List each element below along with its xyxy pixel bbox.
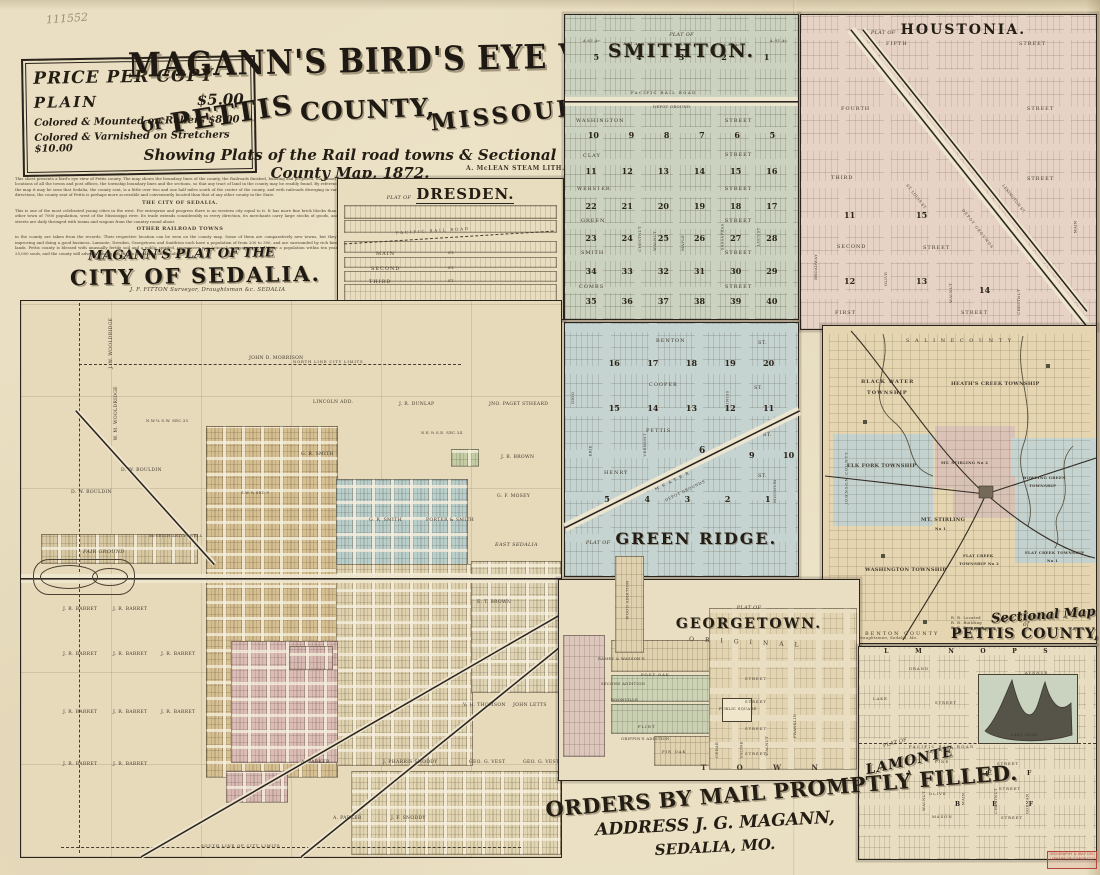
fairground-label: FAIR GROUND <box>83 550 125 555</box>
street-label: ST. <box>758 474 767 479</box>
township-label: FLAT CREEK <box>963 554 994 558</box>
street-label: ERIE <box>589 445 593 456</box>
street-label: SALINE <box>740 741 744 758</box>
street-label: FIRST <box>835 311 856 316</box>
block-number: 6 <box>699 447 705 456</box>
parcel-label: JOHN LETTS <box>513 704 547 709</box>
street-label: CLAY <box>583 154 601 159</box>
smithton-depot-label: DEPOT GROUND <box>653 105 690 109</box>
addition-label: WOOD ADDITION <box>626 580 630 619</box>
street-label: WALNUT <box>949 283 953 303</box>
street-label: AVENUE <box>1025 671 1048 675</box>
parcel-label: J. R. BARRET <box>161 711 195 716</box>
lamonte-block-letter-row: LMNOPS <box>871 649 1061 655</box>
map-main-title: MAGANN'S BIRD'S EYE VIEW <box>128 37 579 86</box>
street-label: WALNUT <box>922 791 926 811</box>
lamonte-title-prefix: PLAT OF <box>883 738 908 749</box>
addition-label: GRIFFIN'S ADDITION <box>621 737 670 741</box>
street-label: CHESTNUT <box>994 788 998 814</box>
street-label: MAPLE <box>681 235 685 251</box>
block-number: 9 <box>749 451 755 459</box>
township-label: FLAT CREEK TOWNSHIP <box>1025 551 1084 555</box>
township-label: HEATH'S CREEK TOWNSHIP <box>951 382 1040 387</box>
smithton-block-row: 222120191817 <box>573 202 790 210</box>
parcel-label: J. R. BARRET <box>113 608 147 613</box>
county-border-label: JOHNSON COUNTY <box>845 451 849 504</box>
street-label: STREET <box>745 752 767 756</box>
street-label: GORMAN <box>1025 794 1029 815</box>
green-ridge-railroad-line <box>563 407 801 532</box>
street-label: STREET <box>1027 107 1054 112</box>
township-label: MT. STIRLING <box>921 518 965 523</box>
acreage-label: A.61 Ac. <box>623 42 641 46</box>
street-label: STREET <box>745 727 767 731</box>
street-label: CEDAR <box>715 742 719 758</box>
street-label: LOCUST <box>756 228 760 247</box>
township-label: BOWLING GREEN <box>1023 476 1066 480</box>
street-label: FLINT <box>638 725 656 729</box>
street-label: FIFTH <box>886 42 908 47</box>
block-number: 12 <box>844 277 855 285</box>
street-label: FOURTH <box>841 107 870 112</box>
county-border-label: S A L I N E C O U N T Y <box>906 338 1013 344</box>
green-ridge-block-row: 54321 <box>587 495 788 503</box>
addition-label: SECOND ADDITION <box>601 682 645 686</box>
street-label: THIRD <box>831 176 853 181</box>
street-label: STREET <box>935 701 957 705</box>
street-label: CHESTNUT <box>638 226 642 252</box>
sedalia-title-line1: MAGANN'S PLAT OF THE <box>88 245 275 263</box>
street-label: STREET <box>1027 177 1054 182</box>
georgetown-addition-block <box>611 704 723 734</box>
plat-georgetown: PLAT OF GEORGETOWN. RAMEY & WASSON'S POS… <box>558 579 860 781</box>
description-para2: This is one of the most celebrated young… <box>15 208 345 224</box>
plat-green-ridge: BENTON ST. 1617181920 COOPER ST. 1514131… <box>564 322 799 577</box>
street-label: STREET <box>725 285 752 290</box>
smithton-block-row: 111213141516 <box>573 167 790 175</box>
addition-label: BOONVILLE <box>611 698 638 702</box>
street-label: HENRY <box>604 471 628 476</box>
sedalia-south-limit-line <box>61 847 521 848</box>
street-label: BROADWAY <box>814 254 818 280</box>
parcel-label: E. T. BROWN <box>477 601 511 606</box>
parcel-label: D. W. BOULDIN <box>71 491 112 496</box>
parcel-label: J. R. BARRET <box>63 711 97 716</box>
parcel-label: J. W. WOOLDRIDGE <box>110 318 115 369</box>
smithton-title-prefix: PLAT OF <box>669 32 694 38</box>
street-label: LAKE <box>873 697 888 701</box>
sectional-map: S A L I N E C O U N T Y JOHNSON COUNTY C… <box>822 325 1097 644</box>
section-code-label: N.E.¼ S.E. SEC.34 <box>421 431 462 435</box>
parcel-label: A. PARKER <box>333 817 362 822</box>
parcel-label: J. B. BROWN <box>501 456 534 461</box>
township-label: ELK FORK TOWNSHIP <box>847 464 916 469</box>
green-ridge-block-row: 1617181920 <box>595 359 788 367</box>
georgetown-title-prefix: PLAT OF <box>737 605 762 611</box>
street-label: COOPER <box>649 383 678 388</box>
dresden-street-st: ST. <box>448 251 455 255</box>
street-label: MASON <box>932 815 953 819</box>
block-number: 13 <box>916 277 927 285</box>
dresden-street-third: THIRD <box>369 280 391 285</box>
parcel-label: J. R. BARRET <box>113 653 147 658</box>
sedalia-city-grid <box>351 771 561 855</box>
dresden-lot-row <box>344 205 557 219</box>
street-label: COMBS <box>579 285 604 290</box>
township-label: TOWNSHIP No 2 <box>959 562 999 566</box>
sectional-title-line2: PETTIS COUNTY, MO. <box>951 626 1100 642</box>
parcel-label: W. M. WOOLDRIDGE <box>115 386 120 440</box>
parcel-label: J. F. SNODDY <box>391 817 426 822</box>
plat-smithton: PLAT OF SMITHTON. A.63 Ac. A.61 Ac. A.91… <box>564 14 799 320</box>
street-label: MAIN <box>961 793 965 806</box>
city-limit-label: SOUTH LINE OF CITY LIMITS <box>201 844 280 848</box>
smithton-block-row: 54321 <box>575 53 788 61</box>
street-label: PIN OAK <box>662 750 686 754</box>
dresden-title-prefix: PLAT OF <box>387 195 412 201</box>
acreage-label: A.91 Ac. <box>723 43 741 47</box>
street-label: ST. <box>758 341 767 346</box>
smithton-block-row: 343332313029 <box>573 267 790 275</box>
street-label: SECOND <box>837 245 866 250</box>
plat-sedalia: J. W. WOOLDRIDGE W. M. WOOLDRIDGE JOHN D… <box>20 300 562 858</box>
houstonia-railroad-siding <box>861 28 1089 313</box>
addition-label: RAMEY & WASSON'S <box>598 657 645 661</box>
parcel-label: GEO. G. VEST <box>523 761 559 766</box>
dresden-street-st: ST. <box>448 279 455 283</box>
handwritten-catalog-number: 111552 <box>46 11 89 27</box>
parcel-label: McVEIGH AND POWELL <box>149 534 203 538</box>
street-label: BENTON <box>656 339 686 344</box>
price-plain-label: PLAIN <box>34 93 99 112</box>
town-label: T O W N <box>701 764 832 771</box>
parcel-label: LINCOLN ADD. <box>313 401 353 406</box>
parcel-label: PORTER & SMITH <box>426 519 474 524</box>
street-label: VERMONT <box>643 433 647 456</box>
parcel-label: V. H. THOMSON <box>463 704 506 709</box>
plat-dresden: PLAT OF DRESDEN. PACIFIC RAIL ROAD MAIN … <box>337 178 564 320</box>
parcel-label: J. R. BARRET <box>113 711 147 716</box>
street-label: STREET <box>961 311 988 316</box>
street-label: SMITH <box>581 251 604 256</box>
street-label: MAIN <box>1073 221 1077 234</box>
parcel-label: J. R. BARRET <box>161 653 195 658</box>
smithton-block-row: 353637383940 <box>573 297 790 305</box>
acreage-label: A.63 Ac. <box>583 39 601 43</box>
description-heading-towns: OTHER RAILROAD TOWNS <box>15 226 345 233</box>
street-label: STREET <box>725 153 752 158</box>
street-label: FRANKLIN <box>793 714 797 738</box>
street-label: STREET <box>725 119 752 124</box>
block-number: 11 <box>844 211 855 219</box>
parcel-label: J. PHARRIS SNODDY <box>383 761 438 766</box>
street-label: STREET <box>923 246 950 251</box>
street-label: STREET <box>725 251 752 256</box>
township-label: No 1 <box>1047 559 1058 563</box>
street-label: STREET <box>1001 816 1023 820</box>
section-code-label: S.W.¼ SEC.9 <box>241 491 269 495</box>
green-ridge-block-row: 1514131211 <box>595 404 788 412</box>
map-sheet: 111552 PRICE PER COPY PLAIN $5.00 Colore… <box>0 0 1100 875</box>
plat-lamonte: LMNOPS GRAND AVENUE LAKE STREET LAKE SHA… <box>858 646 1097 860</box>
georgetown-addition-block <box>563 635 605 757</box>
depot-grounds-label: DEPOT GROUNDS <box>961 208 994 249</box>
street-label: ST. <box>763 433 772 438</box>
street-label: STREET <box>725 187 752 192</box>
public-square-label: PUBLIC SQUARE <box>719 707 757 711</box>
acreage-label: A.93 Ac. <box>770 39 788 43</box>
street-label: SASSAFRAS <box>720 224 724 251</box>
dresden-street-st: ST. <box>448 266 455 270</box>
street-label: OLIVE <box>929 792 947 796</box>
block-number: 15 <box>916 211 927 219</box>
sheet-edge-top <box>0 0 1100 10</box>
block-number: 10 <box>783 451 794 459</box>
parcel-label: GEO. G. VEST <box>469 761 505 766</box>
sedalia-city-grid <box>451 449 479 467</box>
dresden-title: DRESDEN. <box>416 185 514 204</box>
parcel-label: G. R. SMITH <box>369 519 402 524</box>
street-label: CHESTNUT <box>1017 289 1021 315</box>
street-label: STREET <box>725 219 752 224</box>
lake-shaw-label: LAKE SHAW <box>1011 733 1038 737</box>
georgetown-title: GEORGETOWN. <box>676 616 822 632</box>
township-label: No 1 <box>935 527 946 531</box>
fairground-track-icon <box>33 559 135 595</box>
street-label: PETTIS <box>646 429 671 434</box>
township-label: TOWNSHIP <box>867 391 908 396</box>
description-para1: This sheet presents a bird's eye view of… <box>15 176 345 198</box>
street-label: WEBSTER <box>577 187 611 192</box>
street-label: GRAND <box>909 667 929 671</box>
georgetown-original-grid <box>709 608 857 770</box>
dresden-street-second: SECOND <box>371 267 400 272</box>
street-label: POST OAK <box>641 673 670 677</box>
parcel-label: J. R. BARRET <box>63 608 97 613</box>
street-label: OHIO <box>571 392 575 404</box>
street-label: WALNUT <box>653 231 657 251</box>
title-county: COUNTY, <box>300 93 436 127</box>
street-label: ST. <box>754 386 763 391</box>
green-ridge-title-prefix: PLAT OF <box>586 540 611 546</box>
block-number: 14 <box>979 286 990 294</box>
plat-houstonia: PLAT OF HOUSTONIA. FIFTH STREET FOURTH S… <box>800 14 1097 330</box>
sedalia-north-limit-line <box>79 364 461 365</box>
parcel-label: JNO. PAGET STHEARD <box>489 403 548 408</box>
sedalia-title-line2: CITY OF SEDALIA. <box>70 261 321 290</box>
street-label: STREET <box>745 700 767 704</box>
street-label: ST. LOUIS ST. <box>905 184 927 211</box>
section-code-label: N.W.¼ S.W. SEC.33 <box>146 419 188 423</box>
street-label: WASHINGTON <box>576 119 624 124</box>
parcel-label: G. R. SMITH <box>301 453 334 458</box>
parcel-label: A. PARKER <box>301 761 330 766</box>
parcel-label: J. R. BARRET <box>113 763 147 768</box>
sedalia-surveyor-credit: J. F. FITTON Surveyor, Draughtsman &c. S… <box>130 288 285 294</box>
smithton-block-row: 1098765 <box>573 131 790 139</box>
dresden-street-main: MAIN <box>376 252 395 257</box>
lithographer-credit: A. McLEAN STEAM LITH. <box>466 166 565 172</box>
township-label: WASHINGTON TOWNSHIP <box>865 568 946 573</box>
library-stamp: GEOGRAPHY & MAP DIV. LIBRARY OF CONGRESS <box>1047 851 1097 869</box>
street-label: STREET <box>1019 42 1046 47</box>
street-label: ILLINOIS <box>726 390 730 411</box>
houstonia-title: HOUSTONIA. <box>901 22 1026 38</box>
street-label: STREET <box>745 677 767 681</box>
township-label: BLACK WATER <box>861 380 914 385</box>
parcel-label: J. R. DUNLAP <box>399 403 434 408</box>
street-label: GREEN <box>581 219 605 224</box>
city-limit-label: NORTH LINE CITY LIMITS <box>293 360 363 364</box>
description-heading-sedalia: THE CITY OF SEDALIA. <box>15 200 345 207</box>
parcel-label: J. R. BARRET <box>63 653 97 658</box>
township-label: TOWNSHIP <box>1029 484 1056 488</box>
street-label: OLIVE <box>884 272 888 286</box>
description-text-block: This sheet presents a bird's eye view of… <box>15 176 345 258</box>
sedalia-city-grid <box>289 646 333 670</box>
map-sheet-stage: 111552 PRICE PER COPY PLAIN $5.00 Colore… <box>0 0 1100 875</box>
parcel-label: G. F. MOSEY <box>497 495 530 500</box>
stamp-line2: LIBRARY OF CONGRESS <box>1048 857 1096 862</box>
green-ridge-title: GREEN RIDGE. <box>616 529 778 548</box>
parcel-label: J. R. BARRET <box>63 763 97 768</box>
parcel-label: D. W. BOULDIN <box>121 469 162 474</box>
houstonia-title-prefix: PLAT OF <box>871 30 896 36</box>
east-sedalia-label: EAST SEDALIA <box>495 543 538 548</box>
street-label: STREET <box>999 787 1021 791</box>
township-label: MT. STIRLING No 2 <box>941 461 988 465</box>
smithton-railroad-label: PACIFIC RAIL ROAD <box>631 91 697 95</box>
